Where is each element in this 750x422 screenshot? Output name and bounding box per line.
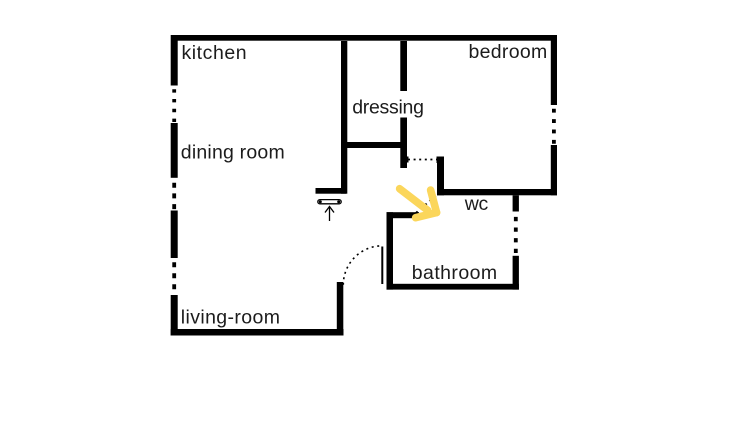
svg-text:wc: wc <box>464 193 489 215</box>
svg-text:dining room: dining room <box>181 141 285 163</box>
svg-text:bathroom: bathroom <box>412 262 498 284</box>
svg-text:kitchen: kitchen <box>182 42 248 64</box>
svg-text:living-room: living-room <box>181 306 281 328</box>
svg-text:bedroom: bedroom <box>469 41 548 63</box>
svg-text:dressing: dressing <box>352 97 423 119</box>
